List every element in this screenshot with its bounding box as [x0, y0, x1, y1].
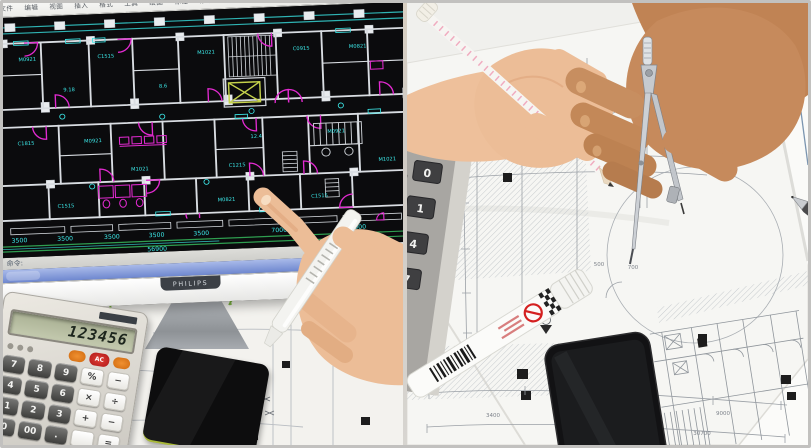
svg-text:9000: 9000: [716, 411, 730, 417]
left-photo-cad-monitor: 文件 编辑 视图 插入 格式 工具 绘图 标注 修改 参数 窗口 打印 帮助 关…: [3, 3, 403, 445]
svg-text:500: 500: [594, 262, 605, 268]
compass-handle: [643, 37, 652, 65]
svg-text:3400: 3400: [486, 413, 500, 419]
svg-text:30700: 30700: [693, 431, 711, 437]
hand: [259, 193, 403, 385]
fingernail: [580, 115, 590, 127]
fingernail: [593, 146, 602, 157]
photo-collage: 文件 编辑 视图 插入 格式 工具 绘图 标注 修改 参数 窗口 打印 帮助 关…: [0, 0, 811, 448]
fingernail: [576, 81, 586, 93]
svg-text:700: 700: [628, 265, 639, 271]
right-photo-drafting: 3400 9000 30700 2000 500 700: [407, 3, 808, 445]
compass-hinge: [646, 70, 653, 77]
pointing-hand: [3, 3, 403, 445]
